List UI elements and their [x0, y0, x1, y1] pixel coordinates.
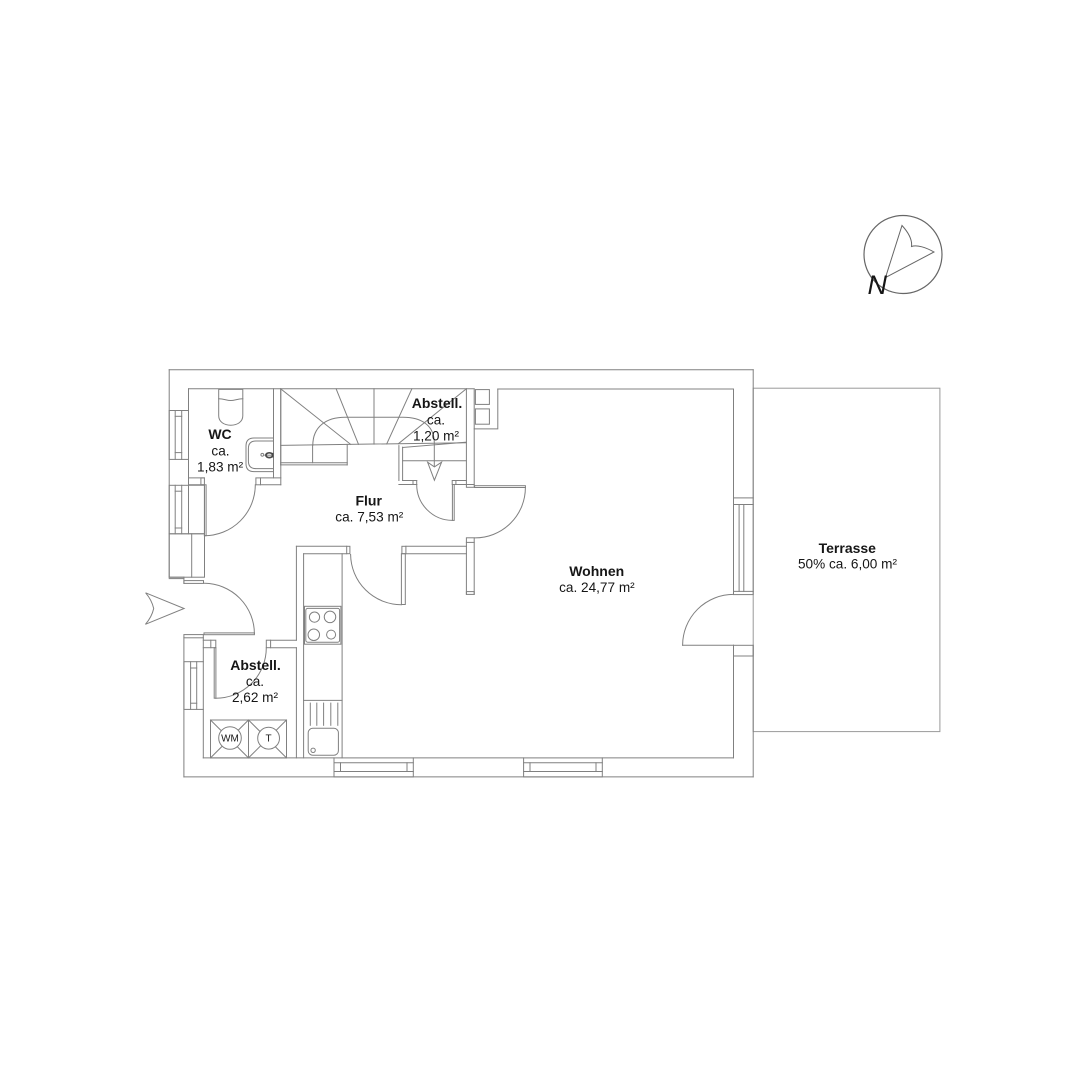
svg-text:Terrasse: Terrasse [819, 540, 877, 556]
svg-text:N: N [868, 270, 888, 300]
svg-text:WM: WM [221, 734, 239, 745]
svg-text:2,62 m²: 2,62 m² [232, 690, 279, 705]
svg-text:ca.: ca. [211, 443, 229, 458]
svg-text:Abstell.: Abstell. [412, 395, 463, 411]
svg-text:T: T [266, 734, 272, 745]
svg-text:Wohnen: Wohnen [569, 563, 624, 579]
svg-text:1,83 m²: 1,83 m² [197, 460, 244, 475]
svg-text:50% ca. 6,00 m²: 50% ca. 6,00 m² [798, 556, 897, 571]
svg-text:Abstell.: Abstell. [230, 657, 281, 673]
svg-text:ca. 24,77 m²: ca. 24,77 m² [559, 580, 635, 595]
svg-text:ca.: ca. [246, 674, 264, 689]
svg-text:ca. 7,53 m²: ca. 7,53 m² [335, 510, 403, 525]
svg-text:1,20 m²: 1,20 m² [413, 428, 460, 443]
svg-text:ca.: ca. [427, 412, 445, 427]
svg-text:Flur: Flur [355, 493, 382, 509]
svg-text:WC: WC [208, 426, 231, 442]
